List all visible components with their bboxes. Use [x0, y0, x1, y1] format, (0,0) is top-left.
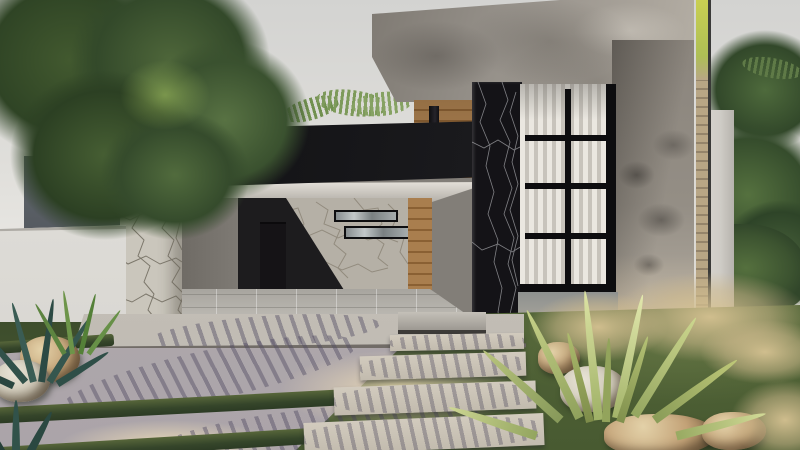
marble-vein-texture — [472, 82, 522, 338]
slit-window-lower — [344, 226, 410, 239]
window-mullion-horizontal — [525, 183, 611, 189]
gridded-window — [520, 84, 616, 294]
black-marble-column — [472, 82, 522, 338]
fern-shadow — [390, 333, 524, 351]
slit-window-upper — [334, 210, 398, 222]
window-mullion-horizontal — [525, 135, 611, 141]
window-mullion-vertical — [565, 89, 571, 289]
carport-service-door — [260, 222, 286, 290]
walkway-slab — [390, 333, 524, 351]
foreground-tree — [100, 110, 250, 240]
house-exterior-render: 475 — [0, 0, 800, 450]
foreground-tree-highlight — [120, 60, 210, 130]
entry-landing-step — [398, 312, 486, 334]
palm-trunk-green-tip — [696, 0, 708, 80]
window-mullion-horizontal — [525, 233, 611, 239]
interior-wood-panel — [408, 198, 432, 290]
